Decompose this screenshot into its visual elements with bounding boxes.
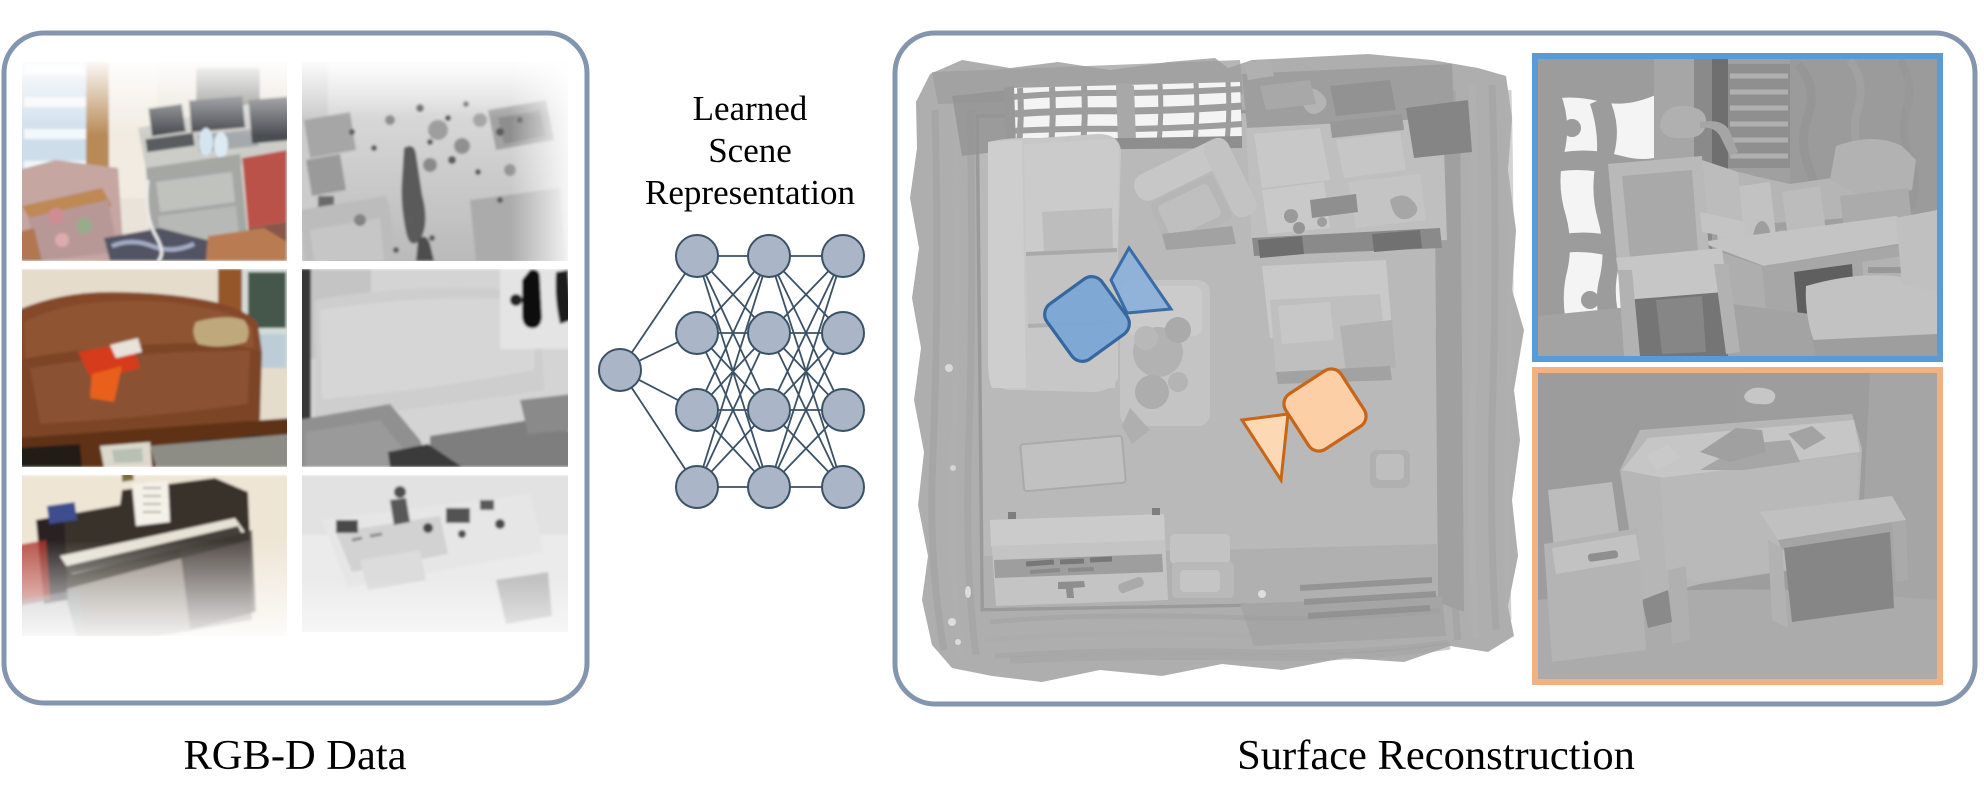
- svg-text:Scene: Scene: [708, 131, 792, 170]
- svg-text:Representation: Representation: [645, 173, 855, 212]
- svg-text:Learned: Learned: [693, 89, 808, 128]
